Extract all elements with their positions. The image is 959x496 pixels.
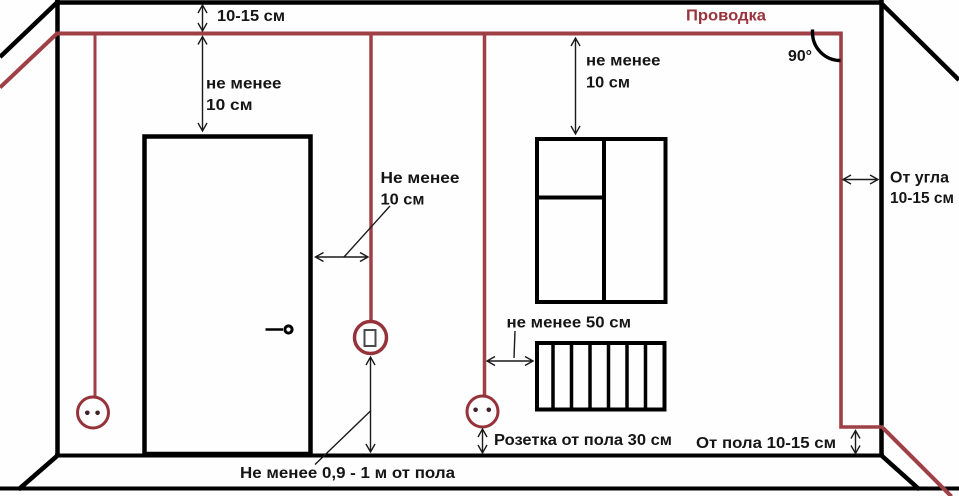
svg-text:Не менее 0,9 - 1 м от пола: Не менее 0,9 - 1 м от пола <box>240 465 455 482</box>
svg-text:От пола 10-15 см: От пола 10-15 см <box>696 435 836 452</box>
svg-text:не менее 50 см: не менее 50 см <box>507 315 632 332</box>
svg-text:90°: 90° <box>788 48 812 65</box>
svg-text:Не менее: Не менее <box>381 170 460 187</box>
svg-text:Проводка: Проводка <box>686 8 766 25</box>
svg-text:10 см: 10 см <box>381 192 425 209</box>
svg-text:От угла: От угла <box>890 170 949 187</box>
svg-text:Розетка от пола 30 см: Розетка от пола 30 см <box>494 432 672 449</box>
svg-text:не менее: не менее <box>586 53 661 70</box>
svg-text:не менее: не менее <box>206 76 282 93</box>
svg-text:10 см: 10 см <box>586 75 630 92</box>
svg-text:10-15 см: 10-15 см <box>890 190 954 207</box>
svg-text:10 см: 10 см <box>206 97 253 114</box>
svg-text:10-15 см: 10-15 см <box>217 8 285 25</box>
